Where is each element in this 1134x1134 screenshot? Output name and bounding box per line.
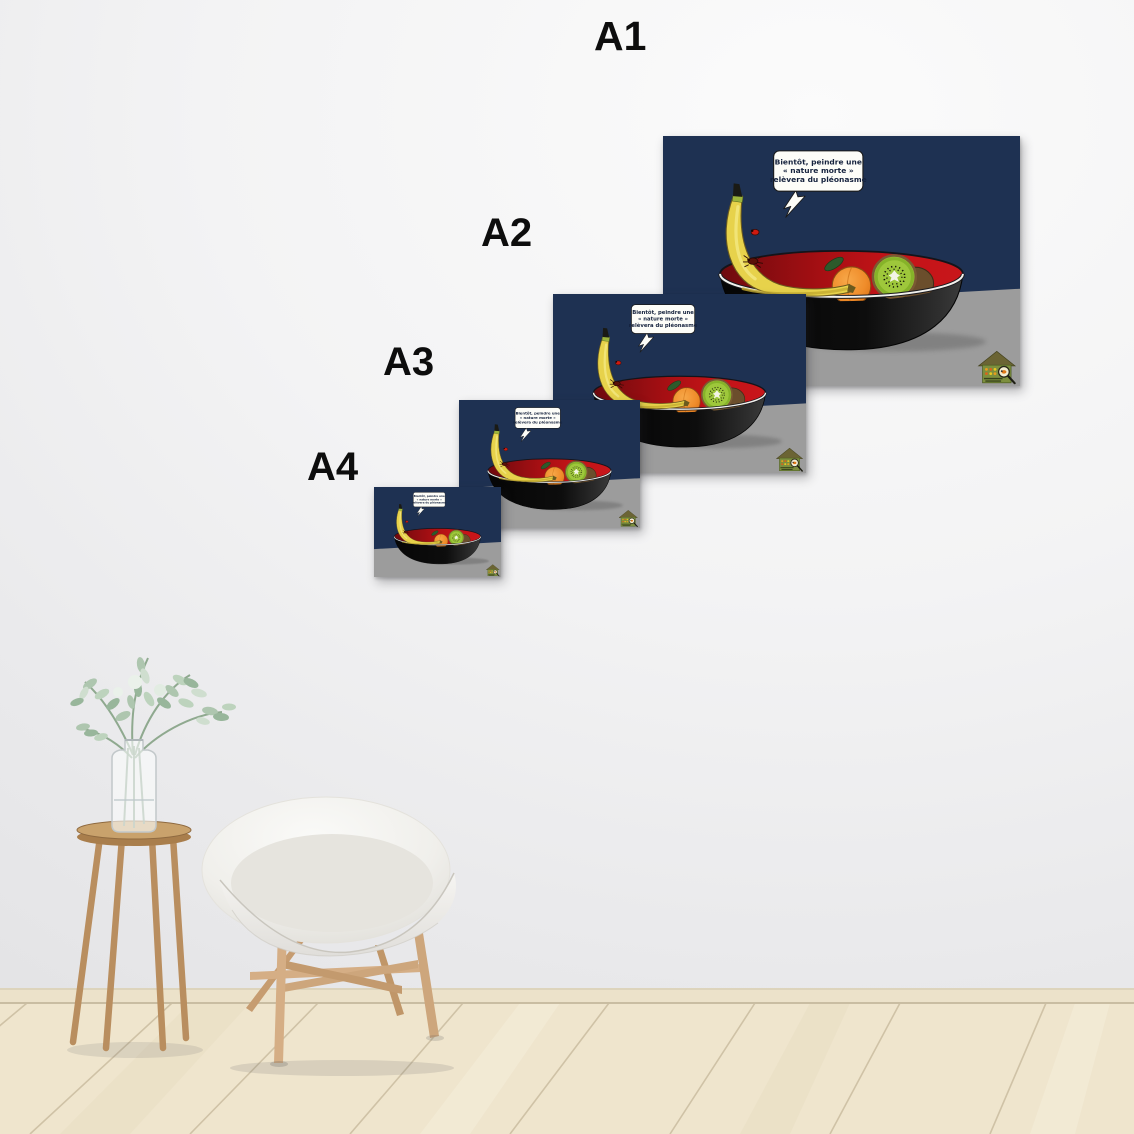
poster-a4 xyxy=(374,487,501,577)
chair-shell xyxy=(202,797,456,956)
eucalyptus-leaves xyxy=(69,656,236,742)
size-label-a4: A4 xyxy=(307,447,358,487)
chair-floor-shadow xyxy=(230,1060,454,1076)
mockup-scene: Bientôt, peindre une « nature morte » re… xyxy=(0,0,1134,1134)
glass-vase xyxy=(112,740,156,832)
stool-floor-shadow xyxy=(67,1042,203,1058)
plant-stems xyxy=(78,658,222,758)
armchair xyxy=(190,780,470,1080)
size-label-a3: A3 xyxy=(383,342,434,382)
size-label-a2: A2 xyxy=(481,213,532,253)
size-label-a1: A1 xyxy=(594,16,646,57)
stool-legs xyxy=(73,837,186,1048)
chair-legs xyxy=(246,930,444,1067)
